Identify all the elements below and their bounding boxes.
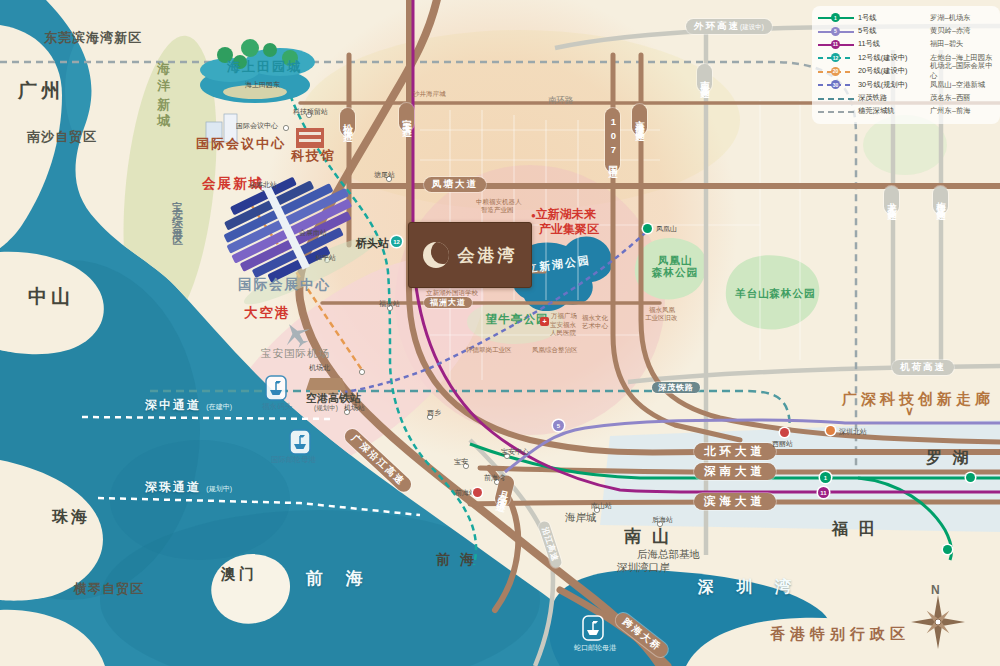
fenghuangshan-line1: 凤凰山 <box>658 254 693 266</box>
poi-lixin-school: 立新湖外国语学校 <box>426 289 478 296</box>
qiaotou-station-label: 桥头站 <box>356 237 389 250</box>
legend-line-route: 罗湖–机场东 <box>930 13 971 23</box>
legend-row-intercity: 穗莞深城轨 广州东–前海 <box>818 105 994 118</box>
station-tangwei: 塘尾站 <box>374 171 395 179</box>
station-shenzhenbei: 深圳北站 <box>839 428 867 436</box>
line12-badge-icon: 12 <box>391 236 402 247</box>
lixin-future-zone-badge: ●立新湖未来产业集聚区 <box>531 207 599 237</box>
line5-badge-icon: 5 <box>553 420 564 431</box>
legend-line-name: 5号线 <box>854 26 930 36</box>
station-nanshan: 南山站 <box>591 502 612 510</box>
region-nansha: 南沙自贸区 <box>27 130 97 145</box>
landmark-sea-pastoral-city: 海上田园城 <box>227 60 302 75</box>
road-binhai-avenue: 滨海大道 <box>694 493 776 510</box>
line20-sample: 20 <box>818 66 854 76</box>
legend-line-name: 穗莞深城轨 <box>854 106 930 116</box>
region-zhongshan: 中山 <box>28 286 74 308</box>
crescent-moon-icon <box>423 242 449 268</box>
hospital-icon: + <box>540 317 549 326</box>
shenmao-sample <box>818 93 854 103</box>
legend-row-line5: 5 5号线 黄贝岭–赤湾 <box>818 24 994 37</box>
poi-shajing-coastal-city: 沙井海岸城 <box>413 90 446 97</box>
lixin-badge-line1: 立新湖未来 <box>536 207 596 221</box>
station-fenghuangshan: 凤凰山 <box>656 225 677 233</box>
waihuan-label: 外环高速 <box>694 20 740 31</box>
shenzhong-note: (在建中) <box>206 403 232 410</box>
line11-legend-icon: 11 <box>831 40 840 49</box>
landmark-airport-hsr: 空港高铁站 <box>306 392 361 405</box>
poi-hospital-1: 宝安福永 <box>550 321 576 328</box>
line12-sample: 12 <box>818 53 854 63</box>
road-baoan-avenue: 宝安大道 <box>399 103 414 131</box>
region-nanshan: 南 山 <box>624 527 672 547</box>
legend-row-line11: 11 11号线 福田–碧头 <box>818 38 994 51</box>
poi-cofco-robot-park-1: 中粮福安机器人 <box>476 198 522 205</box>
legend-line-name: 12号线(建设中) <box>854 53 930 63</box>
legend-row-shenmao: 深茂铁路 茂名东–西丽 <box>818 91 994 104</box>
road-songfu-avenue: 松福大道 <box>340 108 355 136</box>
waihuan-note: (建设中) <box>740 23 764 30</box>
poi-fuyong-fenghuang-2: 工业区旧改 <box>645 314 678 321</box>
gs-tech-corridor: 广深科技创新走廊 <box>842 390 994 407</box>
road-nanhuan: 南环路 <box>548 96 574 106</box>
line12-legend-icon: 12 <box>831 53 840 62</box>
legend-line-name: 20号线(建设中) <box>854 66 930 76</box>
station-jichang: 机场站 <box>344 404 365 412</box>
region-luohu: 罗 湖 <box>926 449 971 467</box>
line30-legend-icon: 30 <box>831 80 840 89</box>
station-xixiang: 西乡 <box>427 409 441 417</box>
station-keji-reserved: 科技预留站 <box>293 108 328 116</box>
poi-fenghuang-renewal: 凤凰综合整治区 <box>532 346 578 353</box>
xili-station-icon <box>780 428 789 437</box>
region-macau: 澳门 <box>221 565 257 582</box>
legend-line-route: 福田–碧头 <box>930 39 963 49</box>
station-fuyong: 福永站 <box>379 300 400 308</box>
road-jinggangao-expressway: 京港澳高速 <box>632 104 647 135</box>
fenghuangshan-line2: 森林公园 <box>652 266 698 278</box>
landmark-exhibition-center: 国际会展中心 <box>238 277 331 293</box>
legend-line-route: 茂名东–西丽 <box>930 93 971 103</box>
line20-legend-icon: 20 <box>831 67 840 76</box>
line1-legend-icon: 1 <box>831 13 840 22</box>
poi-fuyong-culture-2: 艺术中心 <box>582 322 608 329</box>
line30-sample: 30 <box>818 80 854 90</box>
region-futian: 福 田 <box>832 520 877 538</box>
landmark-science-museum: 科技馆 <box>291 149 336 164</box>
legend-line-route: 广州东–前海 <box>930 106 971 116</box>
region-haiyang-newtown: 海洋新城 <box>155 52 170 120</box>
landmark-big-airport: 大空港 <box>244 305 291 321</box>
road-nanguang-expressway: 南光高速 <box>697 64 712 92</box>
region-guangzhou: 广州 <box>18 80 64 102</box>
landmark-convention-center: 国际会议中心 <box>196 137 286 152</box>
coastal-city-mall: 海岸城 <box>565 511 597 523</box>
road-beihuan-avenue: 北环大道 <box>694 443 776 460</box>
location-map: 东莞滨海湾新区 广州 南沙自贸区 中山 珠海 澳门 横琴自贸区 前 海 前 海 … <box>0 0 1000 666</box>
line1-badge-icon: 1 <box>820 472 831 483</box>
station-heping: 和平站 <box>315 254 336 262</box>
line11-badge-icon: 11 <box>818 487 829 498</box>
region-baoan-port: 宝安综合港区 <box>172 192 184 234</box>
road-meiguan-expressway: 梅观高速 <box>933 186 948 214</box>
legend-line-route: 黄贝岭–赤湾 <box>930 26 971 36</box>
road-fengtang-avenue: 凤塘大道 <box>424 177 486 192</box>
road-fuzhou-avenue: 福洲大道 <box>424 297 472 308</box>
landmark-cruise-port: 国际邮轮母港 <box>271 456 316 465</box>
landmark-airport-hsr-note: (规划中) <box>314 404 338 411</box>
landmark-shekou-port: 蛇口邮轮母港 <box>574 644 616 652</box>
shenzhen-bay-port: 深圳湾口岸 <box>617 561 670 573</box>
shenzhu-note: (规划中) <box>206 485 232 492</box>
line5-legend-icon: 5 <box>831 27 840 36</box>
metro-station-icon <box>643 224 652 233</box>
poi-fuyong-fenghuang-1: 福永凤凰 <box>649 306 675 313</box>
landmark-baoan-airport: 宝安国际机场 <box>261 347 330 359</box>
station-haishangtianyuandong: 海上田园东 <box>245 81 280 89</box>
legend-line-name: 11号线 <box>854 39 930 49</box>
lixin-badge-line2: 产业集聚区 <box>539 222 599 236</box>
region-qianhai-sea: 前 海 <box>306 569 372 589</box>
poi-hospital-2: 人民医院 <box>550 329 576 336</box>
shenzhong-label: 深中通道 <box>145 398 201 412</box>
legend-line-route: 机场北–国际会展中心 <box>930 61 994 81</box>
region-dongguan-binhaiwan: 东莞滨海湾新区 <box>44 31 142 46</box>
legend-line-name: 1号线 <box>854 13 930 23</box>
road-g107: 107国道 <box>605 108 620 172</box>
poi-wanfu-plaza: 万福广场 <box>551 312 577 319</box>
region-hengqin: 横琴自贸区 <box>74 582 144 597</box>
region-qianhai: 前 海 <box>436 551 477 567</box>
yangtaishan-park: 羊台山森林公园 <box>735 287 816 299</box>
station-baoan-center: 宝安中心 <box>501 448 529 456</box>
houhai-base: 后海总部基地 <box>637 548 700 560</box>
poi-cofco-robot-park-2: 智造产业园 <box>481 206 514 213</box>
corridor-shenzhong: 深中通道 (在建中) <box>145 399 232 413</box>
project-logo: 会港湾 <box>408 222 532 288</box>
legend-line-name: 30号线(规划中) <box>854 80 930 90</box>
shenzhenbei-station-icon <box>826 426 835 435</box>
landmark-fuyong-pier: 福永码头 <box>262 403 292 412</box>
road-shennan-avenue: 深南大道 <box>694 463 776 480</box>
compass-north-label: N <box>931 583 940 597</box>
legend-line-route: 凤凰山–空港新城 <box>930 80 985 90</box>
station-houhai: 后海站 <box>652 516 673 524</box>
legend-row-line1: 1 1号线 罗湖–机场东 <box>818 11 994 24</box>
metro-station-icon <box>966 473 975 482</box>
road-jihe-expressway: 机荷高速 <box>892 360 954 375</box>
road-waihuan-expressway: 外环高速(建设中) <box>686 19 772 34</box>
line11-sample: 11 <box>818 39 854 49</box>
fenghuangshan-park: 凤凰山森林公园 <box>652 254 698 278</box>
line1-sample: 1 <box>818 13 854 23</box>
shenzhu-label: 深珠通道 <box>145 480 201 494</box>
region-hongkong: 香港特别行政区 <box>770 625 910 642</box>
legend-line-name: 深茂铁路 <box>854 93 930 103</box>
qianhai-station-icon <box>473 488 482 497</box>
rail-shenmao-label: 深茂铁路 <box>652 382 700 393</box>
station-huizhannan: 会展南站 <box>299 229 327 237</box>
project-name: 会港湾 <box>458 244 518 267</box>
station-xili: 西丽站 <box>772 440 793 448</box>
road-longda-expressway: 龙大高速 <box>884 186 899 214</box>
region-zhuhai: 珠海 <box>52 508 90 526</box>
station-huizhanbei: 会展北站 <box>249 181 277 189</box>
corridor-shenzhu: 深珠通道 (规划中) <box>145 481 232 495</box>
metro-station-icon <box>943 545 952 554</box>
station-convention-center: 国际会议中心 <box>236 122 278 130</box>
poi-huaide-industrial: 怀德翠岗工业区 <box>466 346 512 353</box>
line5-sample: 5 <box>818 26 854 36</box>
station-baoan: 宝安 <box>454 458 468 466</box>
station-qianhaiwan: 前海湾 <box>484 474 505 482</box>
legend-row-line30: 30 30号线(规划中) 凤凰山–空港新城 <box>818 78 994 91</box>
chevron-down-icon: ∨ <box>905 405 914 419</box>
region-shenzhen-bay: 深 圳 湾 <box>698 578 800 596</box>
metro-legend: 1 1号线 罗湖–机场东 5 5号线 黄贝岭–赤湾 11 11号线 福田–碧头 … <box>812 6 1000 124</box>
intercity-sample <box>818 106 854 116</box>
poi-fuyong-culture-1: 福永文化 <box>582 314 608 321</box>
legend-row-line20: 20 20号线(建设中) 机场北–国际会展中心 <box>818 65 994 78</box>
station-jichangbei: 机场北 <box>309 364 330 372</box>
